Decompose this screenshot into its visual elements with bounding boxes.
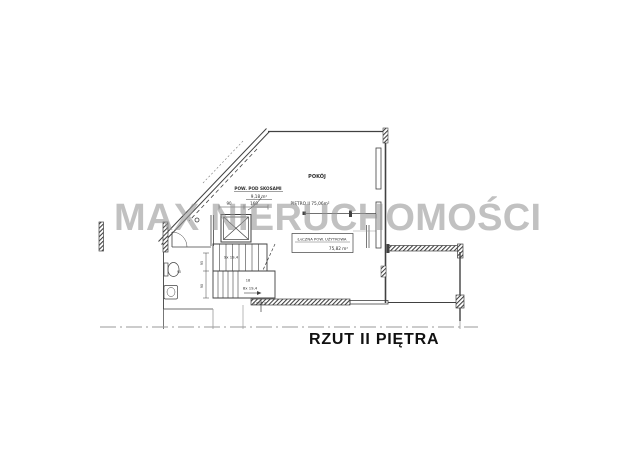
stair-core — [203, 197, 275, 298]
dim-bath: 90 — [177, 270, 181, 274]
dim-left-b: 90 — [200, 284, 204, 288]
slope-label: POW. POD SKOSAMI — [234, 186, 282, 191]
bathroom — [99, 222, 213, 309]
terrace — [387, 244, 465, 321]
room-area-label: PIĘTRO II 75,06m² — [290, 201, 329, 207]
dim-shaft-depth: 160 — [250, 201, 258, 206]
bottom-wall — [213, 298, 388, 305]
dim-shaft-width: 90 — [226, 201, 232, 206]
dim-left-a: 95 — [200, 261, 204, 265]
slope-area: 9,18 m² — [251, 194, 268, 199]
room-outline — [268, 128, 388, 303]
usable-area-box: ŁĄCZNA POW. UŻYTKOWA 75,82 m² — [292, 234, 353, 253]
right-wall-windows — [376, 148, 381, 248]
plan-caption: RZUT II PIĘTRA — [309, 331, 439, 349]
stairs-down-label: 8x 19,4 — [243, 286, 258, 291]
sink-icon — [164, 286, 178, 300]
usable-label: ŁĄCZNA POW. UŻYTKOWA — [296, 237, 346, 242]
floor-plan-page: POKÓJ PIĘTRO II 75,06m² POW. POD SKOSAMI… — [0, 0, 640, 453]
room-name-label: POKÓJ — [308, 173, 326, 180]
door-dim-label: 1,20/2,0 — [253, 302, 266, 306]
annotation-texts: POKÓJ PIĘTRO II 75,06m² POW. POD SKOSAMI… — [177, 173, 353, 306]
floor-plan-drawing: POKÓJ PIĘTRO II 75,06m² POW. POD SKOSAMI… — [0, 0, 640, 453]
usable-area: 75,82 m² — [329, 246, 348, 251]
stairs-count-label: 18 — [246, 279, 250, 283]
stairs-up-label: 9x 19,4 — [224, 255, 239, 260]
